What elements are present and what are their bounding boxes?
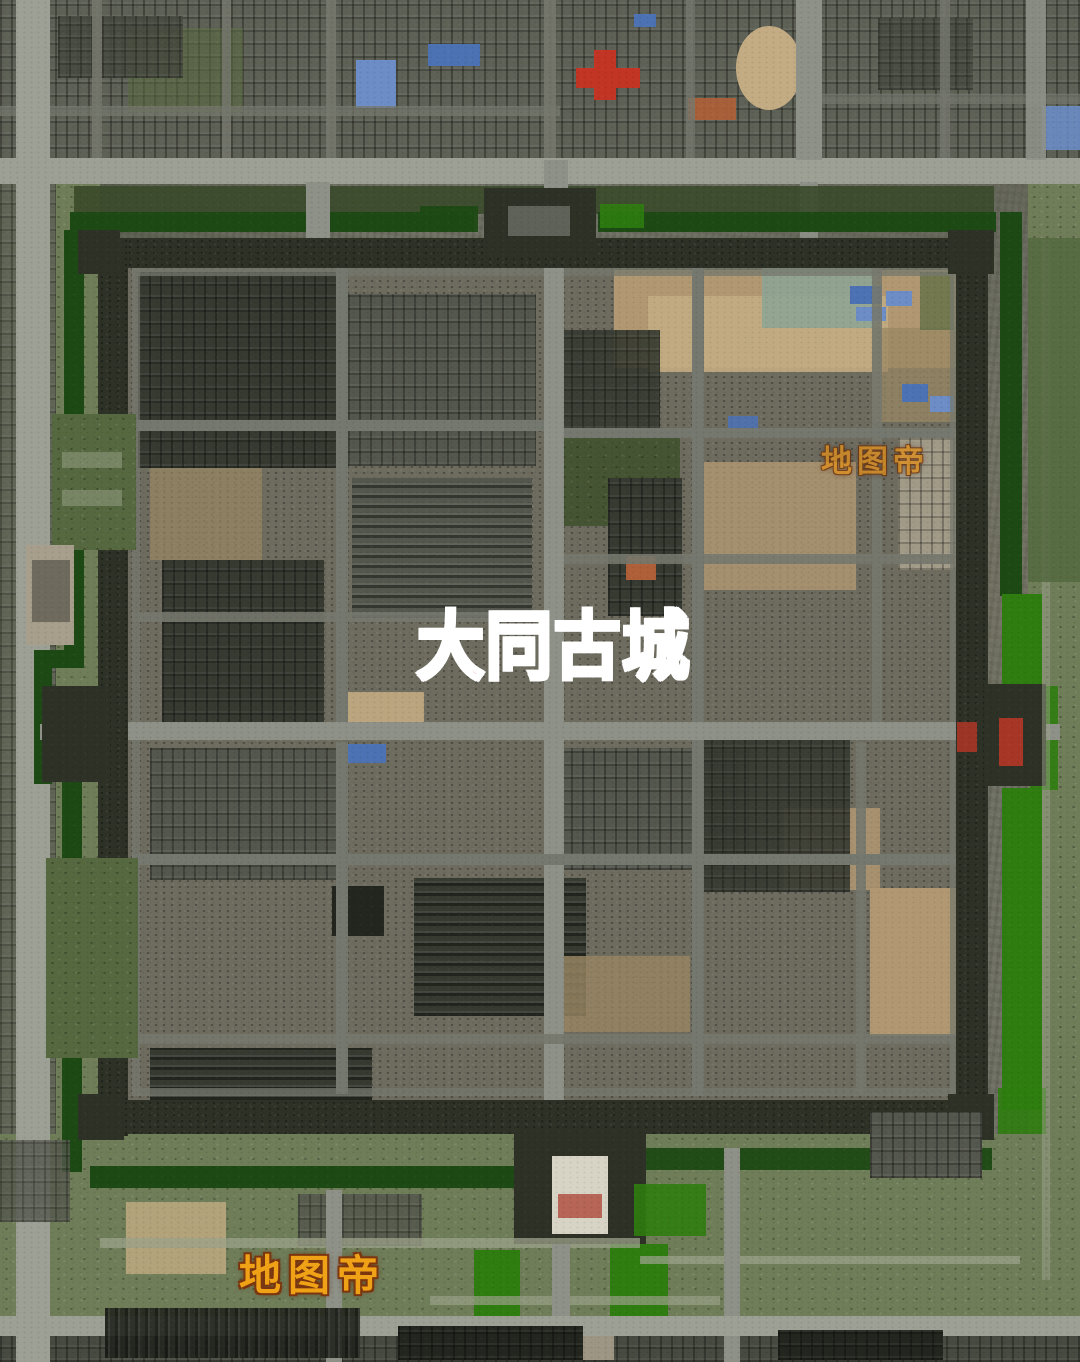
top-red-roofs (688, 98, 736, 120)
west-gate-barbican (42, 686, 110, 782)
street-v340-north (336, 268, 348, 730)
ne-blue-roof-4 (902, 384, 928, 402)
satellite-map: 大同古城 地图帝 地图帝 (0, 0, 1080, 1362)
north-artery-road (0, 158, 1080, 184)
west-dark-roof (32, 560, 70, 622)
city-wall-south (98, 1100, 976, 1134)
west-garden-path-1 (62, 452, 122, 468)
east-moat-mid-bright (1002, 594, 1042, 692)
wall-corner-northeast (948, 230, 994, 274)
ne-inner-green (920, 272, 954, 330)
top-cross-street-1 (92, 0, 102, 160)
south-gate-pool-west (474, 1250, 520, 1324)
north-gate-pool-west (420, 206, 478, 232)
street-v694 (692, 268, 704, 1096)
main-street-horizontal (128, 722, 960, 740)
top-cross-street-4 (544, 0, 556, 160)
city-wall-east (956, 238, 988, 1118)
watermark-top-right: 地图帝 (821, 447, 929, 478)
north-moat-west (70, 212, 474, 232)
right-green-dense (1028, 238, 1080, 582)
south-gate-road (552, 1244, 570, 1318)
temple-complex (608, 478, 682, 616)
athletic-track (736, 26, 802, 110)
southeast-moat-corner (998, 1088, 1046, 1134)
east-wall-tower (957, 722, 977, 752)
watermark-bottom-left: 地图帝 (239, 1255, 386, 1297)
south-park-path-3 (430, 1296, 720, 1305)
bottom-dark-row-2 (398, 1326, 583, 1360)
top-blue-roof-2 (356, 60, 396, 108)
ne-blue-roof-2 (886, 291, 912, 306)
southwest-fort (0, 1140, 70, 1222)
west-mid-rows (352, 478, 532, 618)
street-h558-east (564, 554, 954, 564)
street-h430-east (564, 428, 954, 438)
south-gate-pool-northeast (634, 1184, 706, 1236)
top-minor-road-west (0, 106, 560, 116)
street-h1036 (132, 1034, 958, 1044)
wall-corner-northwest (78, 230, 120, 274)
west-dense-blocks (162, 560, 324, 728)
top-blue-roof-1 (428, 44, 480, 66)
east-moat-lower-bright (1002, 788, 1042, 1110)
north-mid-blocks (348, 294, 536, 466)
street-h858 (132, 854, 958, 865)
drum-tower-plaza (348, 692, 424, 724)
top-dark-block-west (58, 16, 183, 78)
north-road-x800 (796, 0, 822, 160)
top-cross-street-6 (940, 0, 950, 160)
north-gate-pool-east (600, 204, 644, 228)
top-blue-roof-right (1042, 106, 1080, 150)
east-gate-tower (999, 718, 1023, 766)
south-gate-hall-red-roof (558, 1194, 602, 1218)
southeast-blocks (700, 740, 850, 892)
bottom-dark-row-1 (105, 1308, 360, 1358)
wall-corner-southwest (78, 1094, 124, 1140)
west-park-south (46, 858, 138, 1058)
top-cross-street-3 (326, 0, 336, 160)
red-cross-building (594, 50, 616, 100)
south-dirt (554, 956, 690, 1032)
street-h424-west (132, 420, 544, 431)
northwest-dense-blocks (138, 272, 343, 468)
map-title-label: 大同古城 (417, 610, 691, 684)
east-dirt-mid (700, 462, 856, 590)
street-v875-north (872, 268, 882, 730)
top-cross-street-5 (686, 0, 695, 160)
west-garden-path-2 (62, 490, 122, 506)
north-center-blocks (560, 330, 660, 430)
west-garden (52, 414, 136, 550)
top-cross-street-2 (222, 0, 231, 160)
southeast-complex (870, 1112, 982, 1178)
bottom-dark-row-3 (778, 1330, 943, 1360)
top-dark-block-east (878, 18, 973, 90)
right-edge-road-top (1026, 0, 1046, 160)
top-blue-roof-3 (634, 14, 656, 27)
south-park-path-2 (640, 1256, 1020, 1264)
east-moat-upper (1000, 212, 1022, 596)
west-dirt-patch (150, 468, 262, 560)
north-moat-east (598, 212, 996, 232)
north-gate-courtyard (508, 206, 570, 236)
